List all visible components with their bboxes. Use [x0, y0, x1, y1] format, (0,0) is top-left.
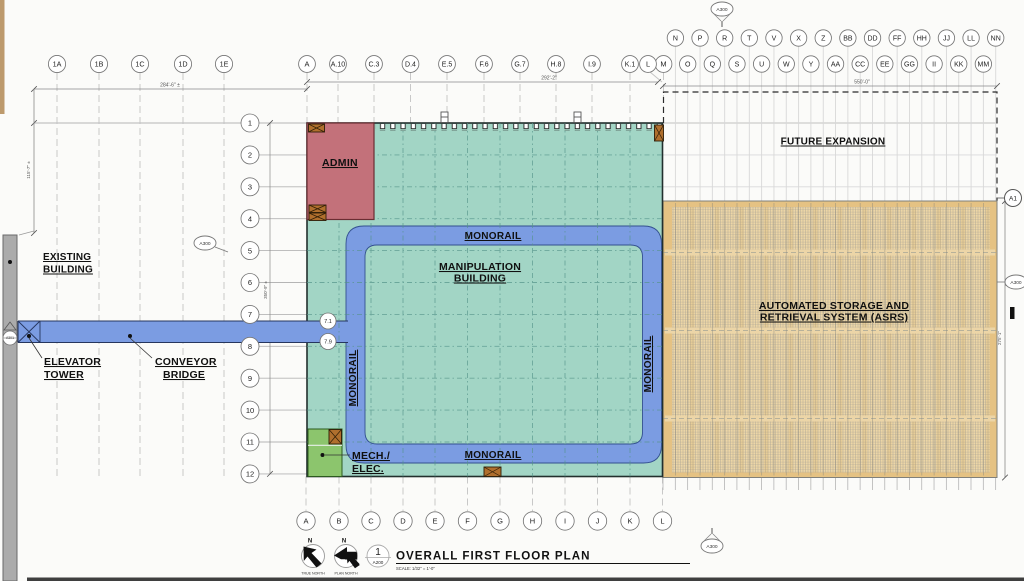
svg-text:MONORAIL: MONORAIL — [348, 350, 359, 407]
svg-text:G.7: G.7 — [514, 62, 525, 69]
svg-text:RETRIEVAL SYSTEM (ASRS): RETRIEVAL SYSTEM (ASRS) — [760, 312, 908, 324]
svg-text:292'-2": 292'-2" — [541, 76, 557, 82]
svg-text:CC: CC — [855, 62, 865, 69]
svg-text:M: M — [660, 60, 666, 69]
svg-text:J: J — [596, 517, 600, 526]
svg-text:K.1: K.1 — [625, 62, 636, 69]
svg-text:NN: NN — [991, 36, 1001, 43]
svg-text:SCALE: 1/32" = 1'-0": SCALE: 1/32" = 1'-0" — [396, 566, 435, 571]
svg-text:12: 12 — [246, 470, 254, 479]
svg-text:A200: A200 — [373, 560, 384, 565]
svg-text:284'-6" ±: 284'-6" ± — [160, 83, 180, 89]
svg-text:C.3: C.3 — [369, 62, 380, 69]
svg-text:O: O — [685, 62, 691, 69]
svg-text:S: S — [735, 62, 740, 69]
svg-text:FF: FF — [893, 36, 902, 43]
svg-text:K: K — [627, 517, 632, 526]
svg-text:E.5: E.5 — [442, 62, 453, 69]
svg-text:1B: 1B — [95, 60, 104, 69]
svg-text:6: 6 — [248, 278, 252, 287]
svg-text:FUTURE EXPANSION: FUTURE EXPANSION — [781, 137, 886, 148]
svg-text:H: H — [530, 517, 535, 526]
svg-text:MONORAIL: MONORAIL — [643, 336, 654, 393]
svg-text:5: 5 — [248, 246, 252, 255]
svg-text:A300: A300 — [716, 7, 728, 13]
svg-text:EXISTING: EXISTING — [43, 252, 91, 263]
svg-text:OVERALL FIRST FLOOR PLAN: OVERALL FIRST FLOOR PLAN — [396, 550, 590, 563]
svg-text:F: F — [465, 517, 470, 526]
svg-text:8: 8 — [248, 342, 252, 351]
svg-text:V: V — [772, 36, 777, 43]
svg-text:MANIPULATION: MANIPULATION — [439, 261, 521, 273]
svg-text:H.8: H.8 — [551, 62, 562, 69]
svg-text:A300: A300 — [1010, 280, 1022, 286]
svg-text:Q: Q — [710, 62, 716, 69]
svg-text:W: W — [783, 62, 790, 69]
svg-text:BUILDING: BUILDING — [43, 265, 93, 276]
svg-text:BB: BB — [843, 36, 853, 43]
svg-text:MECH./: MECH./ — [352, 450, 390, 462]
svg-text:1D: 1D — [178, 60, 187, 69]
svg-text:1: 1 — [248, 119, 252, 128]
svg-text:A.10: A.10 — [331, 62, 346, 69]
svg-text:ELEVATOR: ELEVATOR — [44, 356, 101, 368]
svg-text:I: I — [564, 517, 566, 526]
svg-text:P: P — [698, 36, 703, 43]
svg-text:ELEC.: ELEC. — [352, 463, 384, 475]
svg-text:GG: GG — [904, 62, 915, 69]
svg-text:T: T — [747, 36, 752, 43]
svg-text:G: G — [497, 517, 503, 526]
svg-text:HH: HH — [917, 36, 927, 43]
svg-text:7.1: 7.1 — [324, 319, 332, 325]
svg-text:Z: Z — [821, 36, 826, 43]
svg-text:N: N — [673, 36, 678, 43]
svg-text:E: E — [432, 517, 437, 526]
svg-text:3: 3 — [248, 183, 252, 192]
svg-text:A300: A300 — [706, 544, 718, 550]
svg-text:115'-7" ±: 115'-7" ± — [26, 161, 31, 179]
svg-text:MM: MM — [978, 62, 990, 69]
svg-text:B: B — [336, 517, 341, 526]
svg-text:Y: Y — [809, 62, 814, 69]
svg-text:350'-9" ±: 350'-9" ± — [263, 281, 268, 299]
svg-text:275'-1": 275'-1" — [997, 331, 1002, 345]
svg-text:2: 2 — [248, 151, 252, 160]
svg-text:CONVEYOR: CONVEYOR — [155, 356, 217, 368]
svg-text:9: 9 — [248, 374, 252, 383]
svg-text:F.6: F.6 — [479, 62, 488, 69]
svg-text:ADMIN: ADMIN — [322, 157, 358, 169]
svg-text:EE: EE — [880, 62, 890, 69]
svg-text:BRIDGE: BRIDGE — [163, 369, 205, 381]
svg-text:11: 11 — [246, 438, 254, 447]
svg-text:PLAN NORTH: PLAN NORTH — [334, 572, 358, 576]
svg-text:L: L — [660, 517, 664, 526]
svg-text:D.4: D.4 — [405, 62, 416, 69]
svg-text:1C: 1C — [135, 60, 144, 69]
svg-text:DD: DD — [867, 36, 877, 43]
svg-text:U: U — [759, 62, 764, 69]
svg-text:D: D — [400, 517, 406, 526]
svg-text:550'-0": 550'-0" — [854, 80, 870, 86]
svg-text:R: R — [722, 36, 727, 43]
svg-text:A: A — [303, 517, 308, 526]
svg-text:C: C — [368, 517, 374, 526]
svg-text:KK: KK — [954, 62, 964, 69]
svg-text:MONORAIL: MONORAIL — [465, 450, 522, 461]
svg-text:BUILDING: BUILDING — [454, 273, 506, 285]
svg-text:L: L — [646, 60, 650, 69]
svg-text:TOWER: TOWER — [44, 369, 84, 381]
svg-text:1: 1 — [375, 547, 381, 558]
svg-text:X: X — [796, 36, 801, 43]
svg-text:4: 4 — [248, 214, 252, 223]
svg-text:JJ: JJ — [943, 36, 950, 43]
svg-text:1A: 1A — [53, 60, 62, 69]
svg-text:LL: LL — [967, 36, 975, 43]
svg-text:AA: AA — [831, 62, 841, 69]
svg-text:1E: 1E — [220, 60, 229, 69]
svg-text:TRUE NORTH: TRUE NORTH — [301, 572, 325, 576]
svg-text:N: N — [308, 539, 312, 545]
svg-text:A: A — [305, 60, 310, 69]
svg-text:A1: A1 — [1009, 195, 1017, 202]
svg-text:II: II — [932, 62, 936, 69]
svg-text:10: 10 — [246, 406, 254, 415]
svg-text:7.9: 7.9 — [324, 340, 332, 346]
svg-text:7: 7 — [248, 310, 252, 319]
svg-text:N: N — [342, 539, 346, 545]
svg-text:A300: A300 — [199, 241, 211, 247]
svg-text:MONORAIL: MONORAIL — [465, 231, 522, 242]
svg-text:AUTOMATED STORAGE AND: AUTOMATED STORAGE AND — [759, 300, 909, 312]
svg-text:I.9: I.9 — [588, 62, 596, 69]
